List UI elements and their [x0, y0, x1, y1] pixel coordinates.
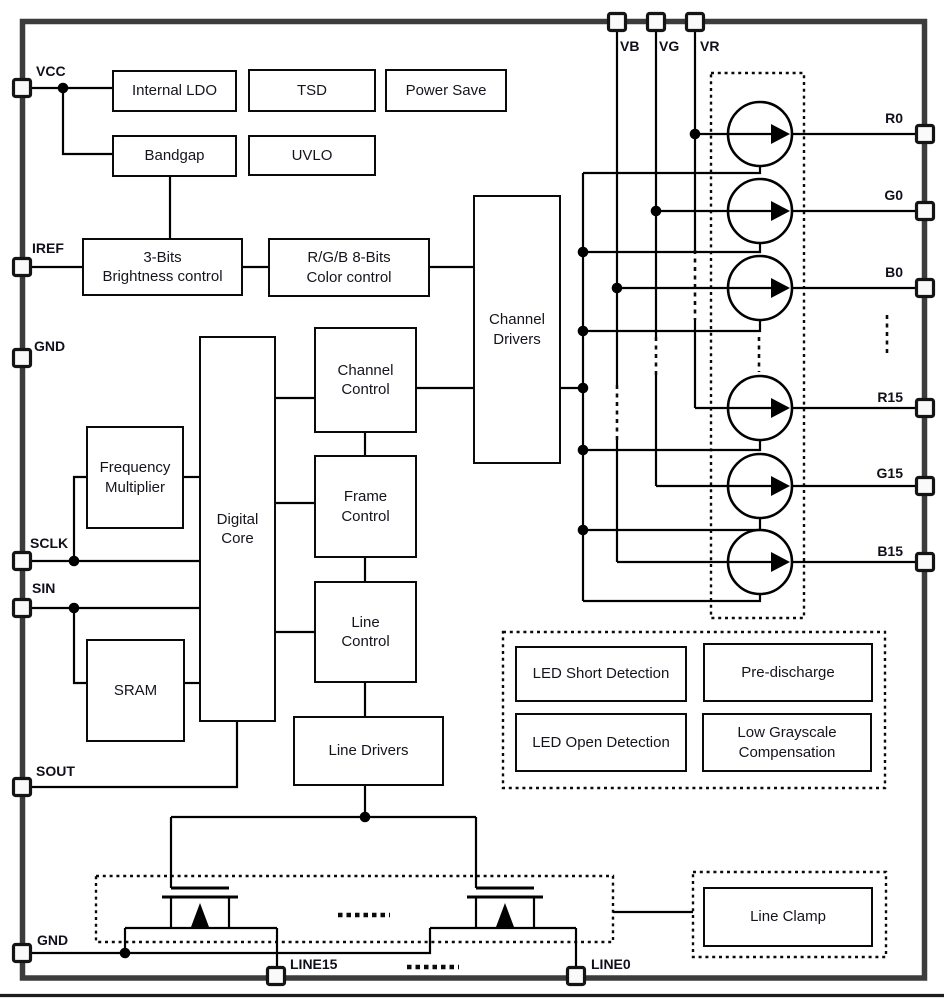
- pin-square-sclk: [14, 553, 31, 570]
- block-led-short-detection: LED Short Detection: [515, 646, 687, 702]
- current-source-b15: [728, 530, 792, 594]
- pin-label-b0: B0: [849, 264, 903, 280]
- wire-ctrl-r0: [583, 165, 760, 173]
- pin-square-vg: [648, 14, 665, 31]
- block-tsd: TSD: [248, 69, 376, 112]
- block-uvlo: UVLO: [248, 135, 376, 176]
- pin-square-sout: [14, 779, 31, 796]
- block-frequency-multiplier: Frequency Multiplier: [86, 426, 184, 529]
- wire-ctrl-g0: [583, 243, 760, 252]
- block-line-control: Line Control: [314, 581, 417, 683]
- pin-label-sclk: SCLK: [30, 535, 68, 551]
- pin-square-b15: [917, 554, 934, 571]
- pin-square-g0: [917, 203, 934, 220]
- current-source-b0: [728, 256, 792, 320]
- pin-square-vb: [609, 14, 626, 31]
- line-mosfet-group-outline: [96, 876, 613, 942]
- current-source-g0: [728, 179, 792, 243]
- pin-label-vr: VR: [700, 38, 719, 54]
- pin-square-b0: [917, 280, 934, 297]
- block-pre-discharge: Pre-discharge: [703, 643, 873, 702]
- block-channel-drivers: Channel Drivers: [473, 195, 561, 464]
- current-source-r15: [728, 376, 792, 440]
- current-source-g15: [728, 454, 792, 518]
- wire-sclk-freqmult: [74, 477, 86, 561]
- wire-ctrl-b0: [583, 320, 760, 331]
- pin-label-r0: R0: [849, 110, 903, 126]
- pin-square-vr: [687, 14, 704, 31]
- pin-label-gnd-left: GND: [34, 338, 65, 354]
- pin-square-r0: [917, 126, 934, 143]
- pin-label-line0: LINE0: [591, 956, 631, 972]
- block-led-open-detection: LED Open Detection: [515, 713, 687, 772]
- pin-square-iref: [14, 259, 31, 276]
- pin-square-vcc: [14, 80, 31, 97]
- block-channel-control: Channel Control: [314, 327, 417, 433]
- pin-square-r15: [917, 400, 934, 417]
- mosfet-line15: [125, 888, 277, 968]
- current-source-r0: [728, 102, 792, 166]
- wire-vcc-bandgap: [63, 88, 112, 154]
- mosfet-line0: [430, 888, 576, 968]
- led-driver-block-diagram: Internal LDO TSD Power Save Bandgap UVLO…: [0, 0, 944, 1000]
- pin-label-line15: LINE15: [290, 956, 337, 972]
- wire-gnd-rail: [30, 928, 430, 953]
- pin-label-b15: B15: [849, 543, 903, 559]
- block-brightness-control: 3-Bits Brightness control: [82, 238, 243, 296]
- wire-ctrl-r15: [583, 440, 760, 450]
- pin-label-gnd-bottom: GND: [37, 932, 68, 948]
- pin-label-r15: R15: [849, 389, 903, 405]
- pin-label-g15: G15: [849, 465, 903, 481]
- block-frame-control: Frame Control: [314, 455, 417, 558]
- mosfet-arrow-icon: [496, 903, 514, 927]
- pin-label-sin: SIN: [32, 580, 55, 596]
- block-line-drivers: Line Drivers: [293, 716, 444, 786]
- block-color-control: R/G/B 8-Bits Color control: [268, 238, 430, 297]
- pin-square-line15: [268, 968, 285, 985]
- block-internal-ldo: Internal LDO: [112, 70, 237, 112]
- pin-label-iref: IREF: [32, 240, 64, 256]
- pin-label-vcc: VCC: [36, 63, 66, 79]
- mosfet-arrow-icon: [191, 903, 209, 927]
- block-bandgap: Bandgap: [112, 135, 237, 177]
- pin-label-g0: G0: [849, 187, 903, 203]
- wire-ctrl-g15: [583, 518, 760, 530]
- wire-ctrl-b15: [583, 594, 760, 601]
- pin-label-vg: VG: [659, 38, 679, 54]
- block-power-save: Power Save: [385, 69, 507, 112]
- pin-square-sin: [14, 600, 31, 617]
- block-line-clamp: Line Clamp: [703, 887, 873, 947]
- block-low-grayscale-compensation: Low Grayscale Compensation: [702, 713, 872, 772]
- pin-square-line0: [568, 968, 585, 985]
- pin-label-vb: VB: [620, 38, 639, 54]
- wire-sin-sram: [74, 608, 86, 683]
- block-digital-core: Digital Core: [199, 336, 276, 722]
- pin-square-gnd-bottom: [14, 945, 31, 962]
- pin-label-sout: SOUT: [36, 763, 75, 779]
- pin-square-gnd-left: [14, 350, 31, 367]
- pin-square-g15: [917, 478, 934, 495]
- block-sram: SRAM: [86, 639, 185, 742]
